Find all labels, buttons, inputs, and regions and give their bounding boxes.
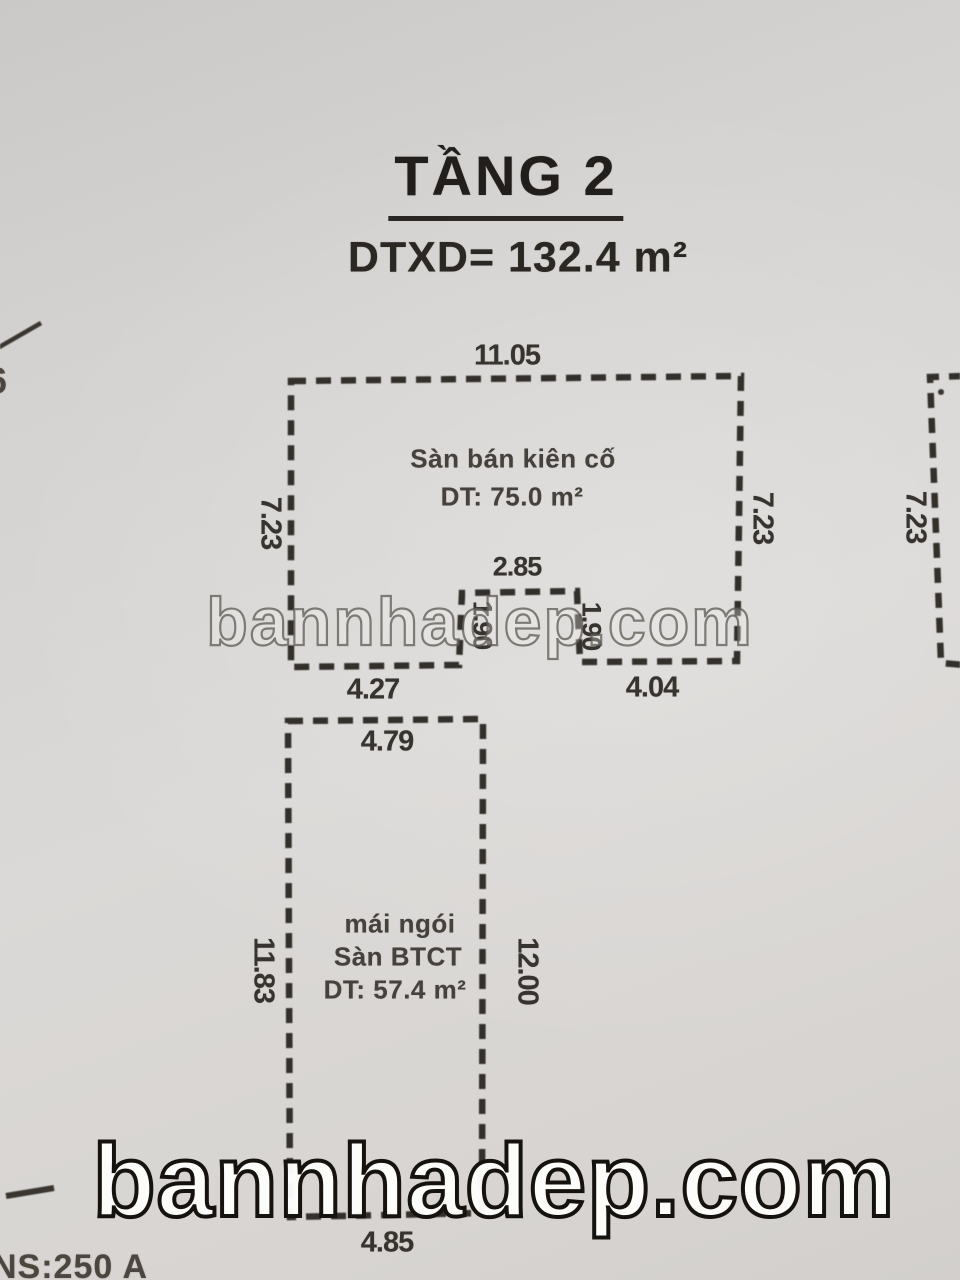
dim-lower-top-width: 4.79 — [361, 726, 413, 759]
dim-adjacent-left-height: 7.23 — [899, 491, 932, 543]
room1-label-line1: Sàn bán kiên cố — [410, 444, 615, 475]
room2-label-line2: Sàn BTCT — [334, 942, 462, 973]
left-partial-digit: 6 — [0, 360, 7, 402]
dim-lower-left-height: 11.83 — [247, 937, 280, 1003]
dim-lower-right-height: 12.00 — [511, 937, 544, 1005]
dim-bottom-left-segment: 4.27 — [347, 674, 399, 707]
adjacent-block-outline — [930, 376, 960, 665]
dim-left-height: 7.23 — [254, 497, 287, 549]
dim-top-width: 11.05 — [474, 340, 540, 373]
page-title: TẦNG 2 — [388, 143, 623, 221]
room2-area: DT: 57.4 m² — [324, 975, 467, 1006]
dim-bottom-right-segment: 4.04 — [626, 672, 678, 705]
watermark-center: bannhadep.com — [206, 583, 753, 661]
room1-area: DT: 75.0 m² — [441, 482, 584, 513]
note-ns250: NS:250 A — [0, 1248, 148, 1280]
bottom-left-tick — [6, 1188, 54, 1196]
dim-right-height: 7.23 — [746, 492, 779, 544]
room2-label-line1: mái ngói — [345, 909, 456, 940]
floorplan-photo: TẦNG 2 DTXD= 132.4 m² 11.05 7.23 7.23 Sà… — [0, 0, 960, 1280]
built-area-subtitle: DTXD= 132.4 m² — [348, 234, 688, 283]
watermark-bottom: bannhadep.com — [93, 1122, 896, 1240]
stray-dot — [938, 389, 944, 395]
left-diagonal-mark — [0, 323, 41, 349]
dim-notch-width: 2.85 — [493, 552, 542, 583]
